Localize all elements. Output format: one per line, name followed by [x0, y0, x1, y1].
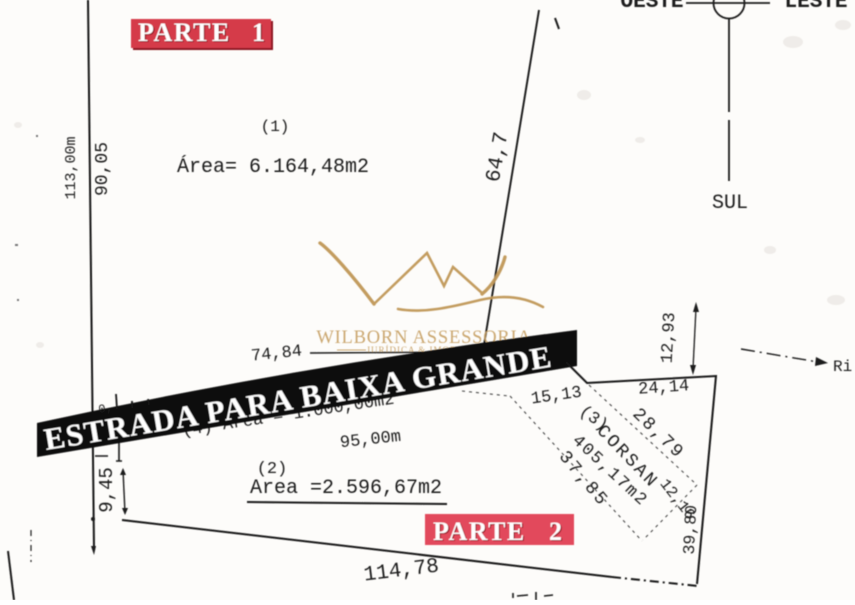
- svg-text:24,14: 24,14: [638, 377, 690, 400]
- svg-text:9,45: 9,45: [96, 467, 118, 513]
- svg-text:0,: 0,: [97, 401, 113, 417]
- svg-text:12,93: 12,93: [659, 312, 681, 364]
- svg-text:90,05: 90,05: [93, 142, 113, 196]
- svg-text:PARTE: PARTE: [138, 18, 231, 47]
- svg-text:1: 1: [252, 18, 265, 47]
- svg-text:39,80: 39,80: [680, 505, 702, 555]
- svg-text:(1): (1): [261, 118, 290, 136]
- svg-text:Área= 6.164,48m2: Área= 6.164,48m2: [177, 155, 369, 179]
- svg-text:OESTE: OESTE: [620, 0, 683, 14]
- svg-text:PARTE: PARTE: [433, 517, 526, 546]
- svg-text:113,00m: 113,00m: [63, 136, 80, 199]
- svg-text:SUL: SUL: [712, 192, 748, 215]
- svg-text:Ri: Ri: [833, 358, 852, 376]
- svg-text:2: 2: [549, 517, 562, 546]
- svg-text:LESTE: LESTE: [784, 0, 847, 14]
- svg-text:Area =2.596,67m2: Area =2.596,67m2: [250, 477, 442, 500]
